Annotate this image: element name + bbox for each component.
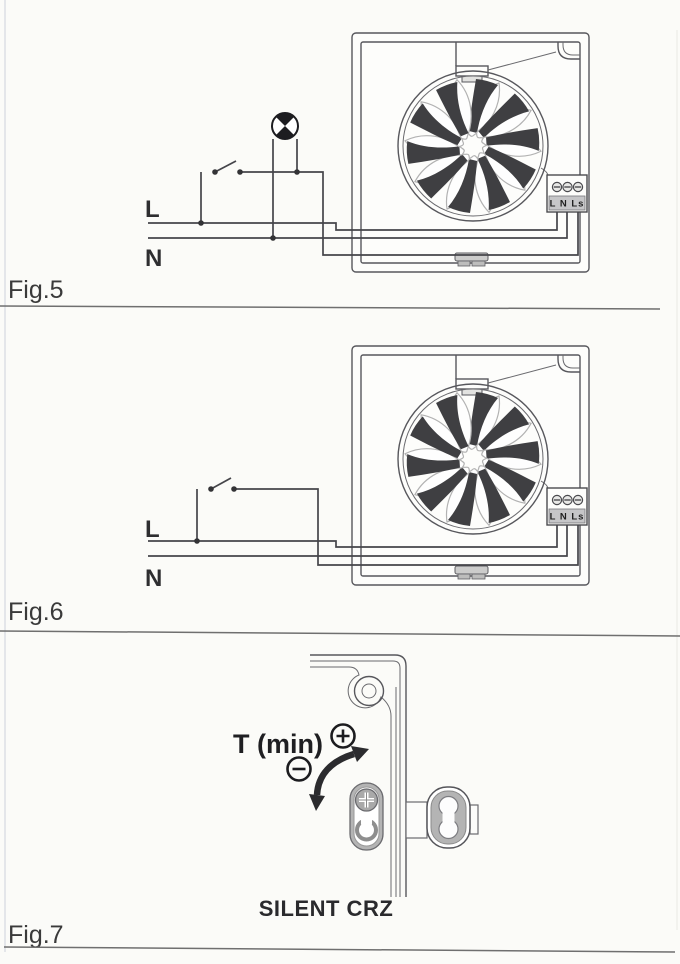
timer-label: T (min)	[233, 729, 323, 759]
timer-screw	[350, 783, 383, 850]
minus-icon	[288, 758, 311, 781]
neutral-label: N	[145, 245, 162, 272]
plus-icon	[332, 725, 355, 748]
panel-divider	[0, 631, 680, 636]
live-label: L	[145, 196, 160, 223]
fig5-diagram: L N Fig.5	[8, 33, 589, 304]
fig7-diagram: T (min)	[8, 655, 478, 949]
mounting-hole-icon	[355, 677, 384, 706]
fig6-label: Fig.6	[8, 598, 64, 626]
neutral-label: N	[145, 565, 162, 592]
fig7-label: Fig.7	[8, 921, 64, 949]
fan-unit	[352, 346, 589, 585]
phillips-screw-icon	[356, 789, 378, 811]
panel-divider	[0, 306, 660, 309]
panel-divider	[4, 947, 675, 952]
lamp-icon	[272, 113, 298, 238]
fan-unit	[352, 33, 589, 272]
manual-page-diagram: L N Ls	[0, 0, 680, 964]
fig5-label: Fig.5	[8, 276, 64, 304]
fig7-caption: SILENT CRZ	[259, 896, 394, 921]
manual-page: L N Ls	[0, 0, 680, 964]
edge-connector	[406, 787, 478, 848]
fig6-diagram: L N Fig.6	[8, 346, 589, 626]
live-label: L	[145, 516, 160, 543]
